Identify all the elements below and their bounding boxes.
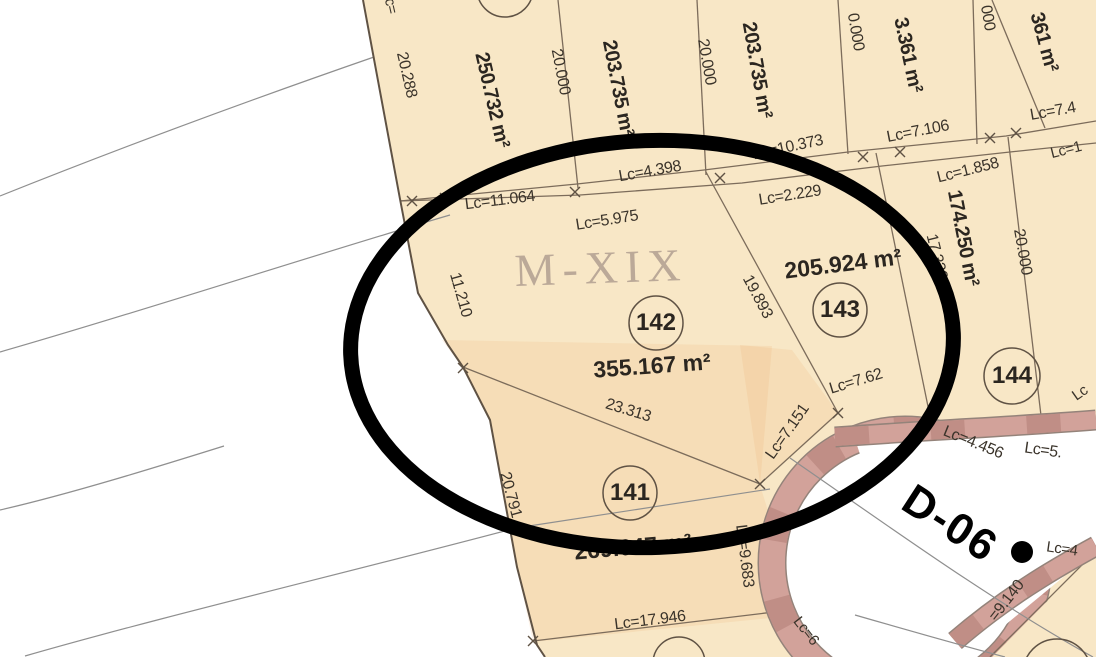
- contour-line: [0, 57, 374, 196]
- lot-144-number: 144: [992, 364, 1032, 388]
- road-point-marker: [1011, 541, 1033, 563]
- edge-length-label: 000: [977, 4, 997, 32]
- cadastral-map: M-XIX D-06 141 142 143 144 269.047 m² 35…: [0, 0, 1096, 657]
- contour-line: [0, 446, 224, 510]
- curve-length-label-partial: Lc=4: [1045, 539, 1078, 558]
